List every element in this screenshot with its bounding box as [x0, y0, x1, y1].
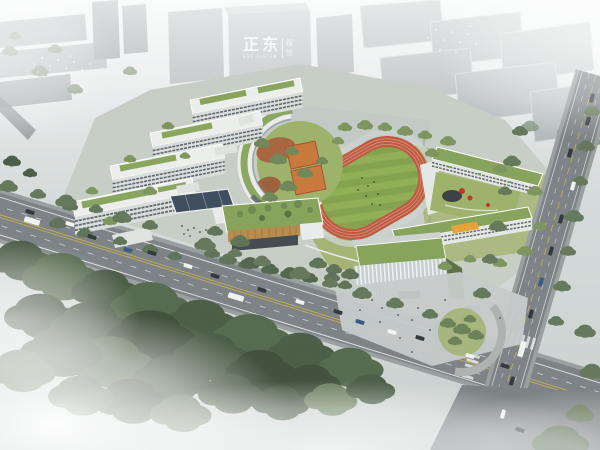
scene-canvas	[0, 0, 600, 450]
play-canopy	[442, 190, 462, 202]
watermark: 正东 EST VISION 视 觉	[243, 37, 293, 59]
aerial-rendering-stage: 正东 EST VISION 视 觉	[0, 0, 600, 450]
watermark-tag-bottom: 觉	[286, 48, 293, 58]
watermark-divider	[282, 38, 283, 58]
watermark-tag-block: 视 觉	[286, 38, 293, 58]
watermark-brand-text: 正东	[243, 37, 281, 53]
watermark-tag-top: 视	[286, 38, 293, 48]
watermark-subtext: EST VISION	[243, 55, 278, 59]
play-structure	[459, 188, 465, 194]
watermark-brand-block: 正东 EST VISION	[243, 37, 281, 59]
